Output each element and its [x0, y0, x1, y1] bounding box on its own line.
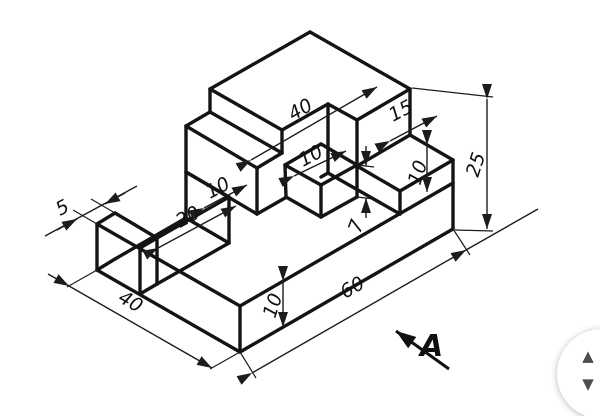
view-arrow-label: A — [418, 329, 443, 364]
dimension-base-depth: 40 — [48, 270, 240, 369]
dim-label-tab-width: 5 — [52, 195, 73, 220]
dim-label-block-height: 7 — [344, 217, 369, 236]
technical-drawing-page: 40 15 10 25 10 7 10 — [0, 0, 600, 416]
dim-label-total-height: 25 — [462, 150, 490, 180]
view-direction-arrow: A — [396, 329, 449, 369]
isometric-drawing-canvas: 40 15 10 25 10 7 10 — [0, 0, 600, 416]
dim-label-base-length: 60 — [337, 272, 369, 303]
dimension-tab-width: 5 — [45, 186, 137, 236]
dim-label-wall-top-length: 40 — [285, 94, 317, 125]
scroll-up-icon[interactable]: ▲ — [577, 349, 599, 364]
right-wall-edges — [210, 32, 453, 214]
dim-label-right-step-height: 10 — [404, 158, 432, 188]
scroll-down-icon[interactable]: ▼ — [577, 377, 599, 392]
dimension-base-length: 60 — [240, 209, 538, 378]
